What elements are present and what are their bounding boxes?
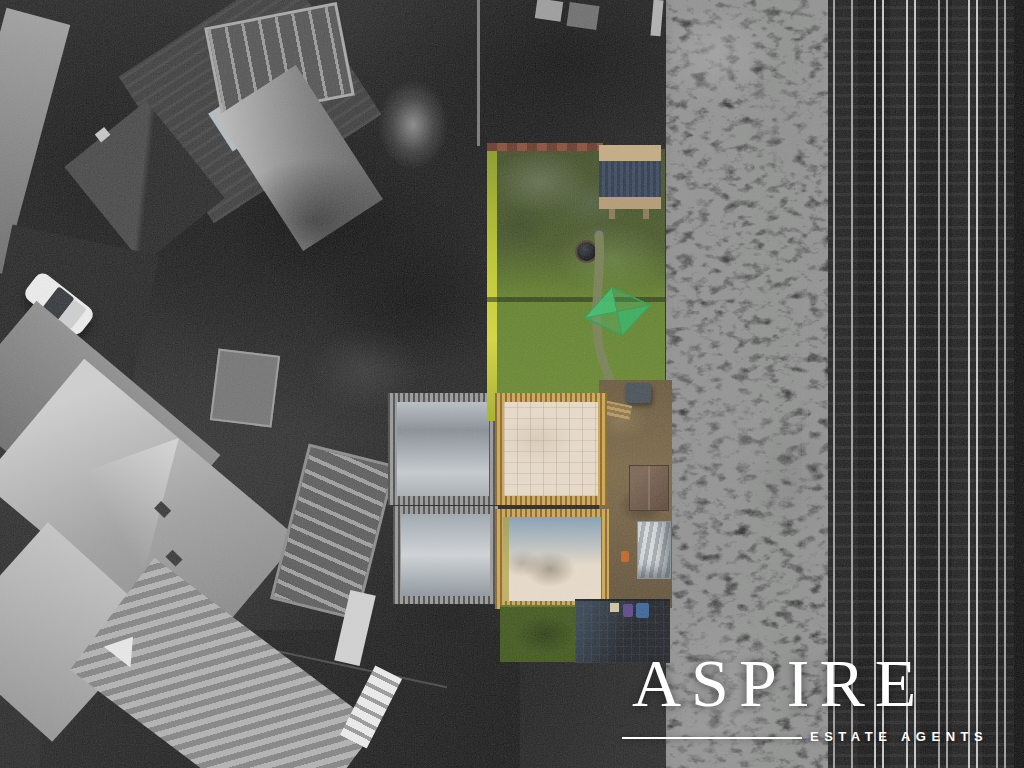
bw-shed: [566, 2, 599, 30]
dormer: [154, 501, 171, 518]
shed-roof-edge: [599, 145, 661, 161]
bw-fence-post: [650, 0, 663, 36]
blue-bin: [636, 603, 649, 618]
house-roof-upper: [495, 393, 607, 505]
neighbour-roof-lower: [393, 506, 498, 604]
bw-shed: [535, 0, 564, 22]
aerial-photo: ASPIRE ESTATE AGENTS: [0, 0, 1024, 768]
storage-box: [610, 603, 619, 612]
watermark-rule: [622, 737, 802, 739]
neighbour-roof-upper: [388, 393, 498, 505]
shed-base: [599, 197, 661, 209]
sunlit-garden-wall: [487, 149, 497, 421]
front-lawn: [500, 605, 575, 662]
garden-table: [625, 383, 651, 403]
bw-outbuilding: [210, 348, 280, 427]
neighbour-roof-surface: [397, 402, 489, 496]
brand-tagline: ESTATE AGENTS: [810, 729, 988, 744]
garden-divider: [487, 297, 665, 302]
brand-wordmark: ASPIRE: [632, 648, 926, 719]
house-roof-surface: [503, 517, 601, 601]
neighbour-roof-surface: [401, 514, 490, 596]
shed-roof: [599, 161, 661, 197]
brown-shed: [629, 465, 669, 511]
bw-greenhouse: [270, 443, 396, 620]
chimney: [95, 127, 111, 142]
house-roof-surface: [504, 402, 598, 496]
bw-garden-wall: [477, 0, 480, 146]
fire-pit: [575, 240, 598, 263]
rear-fence: [487, 143, 603, 151]
white-corrugated-shed: [637, 521, 671, 579]
garden-shed: [599, 145, 661, 217]
highlighted-property: [487, 143, 672, 663]
house-roof-lower: [495, 509, 609, 609]
dormer: [166, 550, 183, 567]
purple-bin: [623, 604, 633, 617]
shed-leg: [643, 209, 649, 219]
roof-mossy-edge: [503, 517, 509, 601]
orange-cone: [621, 551, 629, 562]
shed-leg: [609, 209, 615, 219]
watermark: ASPIRE ESTATE AGENTS: [618, 648, 1018, 760]
tree-trunk: [802, 290, 808, 560]
